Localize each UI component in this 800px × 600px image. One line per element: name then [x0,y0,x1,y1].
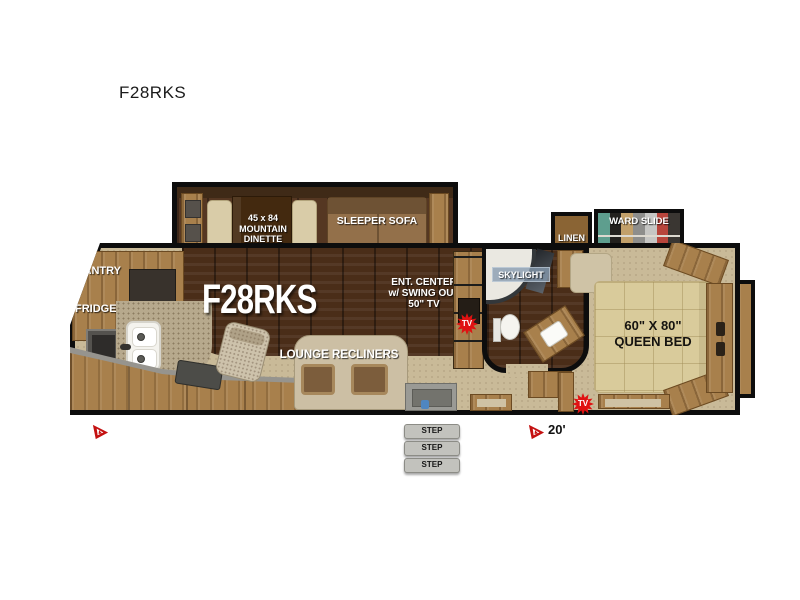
bed-foot-bench [598,394,670,409]
hallway-bench [470,394,512,411]
step: STEP [404,458,460,473]
entry-door-panel [412,389,452,407]
lounge-recliner-seat [301,364,335,395]
step: STEP [404,441,460,456]
coach-body: PANTRY FRIDGE F28RKS ENT. CENTER w/ SWIN… [70,243,740,415]
vanity-sink [539,320,569,348]
closet-rod [598,235,680,237]
door-handle [421,400,429,409]
sink-drain [137,333,145,341]
pantry-label: PANTRY [77,265,121,277]
brand-flag-icon [91,422,110,441]
bench-cushion [605,399,661,407]
ent-center-label: ENT. CENTER w/ SWING OUT 50" TV [386,277,462,310]
bedroom-dresser [706,283,733,393]
sink-faucet [120,344,131,350]
recliner-back [228,326,266,346]
lounge-recliners-label: LOUNGE RECLINERS [274,349,404,361]
skylight-label: SKYLIGHT [492,267,550,282]
lounge-recliner-seat [351,364,388,395]
cabinet-slat [185,200,201,218]
fridge-label: FRIDGE [75,303,117,315]
linen-label: LINEN [555,233,588,243]
awning-length-label: 20' [548,422,566,437]
entertainment-center [453,251,484,369]
step: STEP [404,424,460,439]
dresser-handle [716,322,725,336]
floorplan-page: F28RKS 45 x 84 MOUNTAIN DINETTE SLEEPER … [0,0,800,600]
entry-steps: STEP STEP STEP [404,424,458,475]
entry-door [405,383,457,411]
queen-bed-label: 60" X 80" QUEEN BED [595,318,711,350]
bathroom-vanity [523,305,585,362]
bench-cushion [477,399,506,407]
sleeper-sofa-label: SLEEPER SOFA [319,215,435,227]
floor-model-label: F28RKS [202,277,316,324]
lounge-recliners-platform [294,335,408,410]
toilet [500,314,520,340]
brand-flag-icon [527,422,546,441]
dresser-handle [716,342,725,356]
ward-slide-label: WARD SLIDE [594,216,684,227]
queen-bed: 60" X 80" QUEEN BED [594,281,712,393]
page-title: F28RKS [119,83,186,103]
cabinet-slat [185,224,201,242]
sink-drain [137,355,145,363]
bedroom-cabinet [558,372,574,412]
dinette-label: 45 x 84 MOUNTAIN DINETTE [233,213,293,245]
